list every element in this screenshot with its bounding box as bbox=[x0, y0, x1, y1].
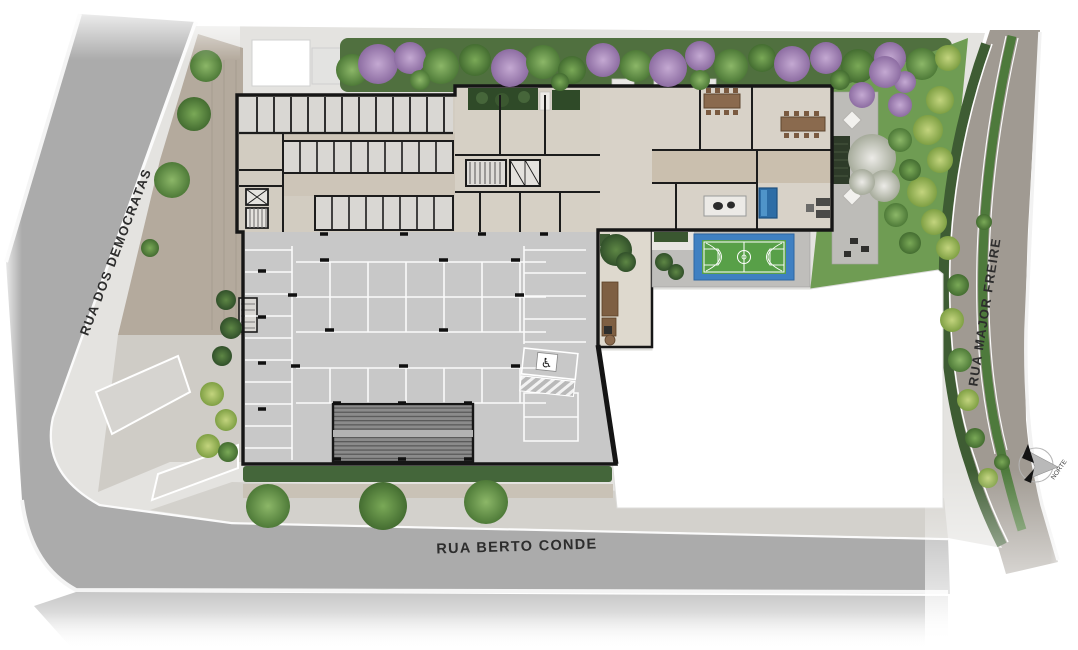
site-plan: ♿ bbox=[0, 0, 1078, 650]
elevator-icon bbox=[246, 189, 268, 205]
sports-court bbox=[694, 234, 794, 280]
wheelchair-icon: ♿ bbox=[540, 355, 553, 371]
pool bbox=[759, 188, 777, 218]
stair-icon bbox=[466, 160, 506, 186]
slatted-roof bbox=[333, 403, 473, 462]
elevator-icon bbox=[510, 160, 540, 186]
green-roof-strips bbox=[468, 88, 580, 110]
kitchen-grill bbox=[704, 196, 746, 216]
bottom-hedge-strip bbox=[243, 466, 612, 482]
site-plan-canvas: ♿ bbox=[0, 0, 1078, 650]
wood-deck-bench bbox=[602, 282, 618, 336]
stair-icon bbox=[246, 208, 268, 228]
